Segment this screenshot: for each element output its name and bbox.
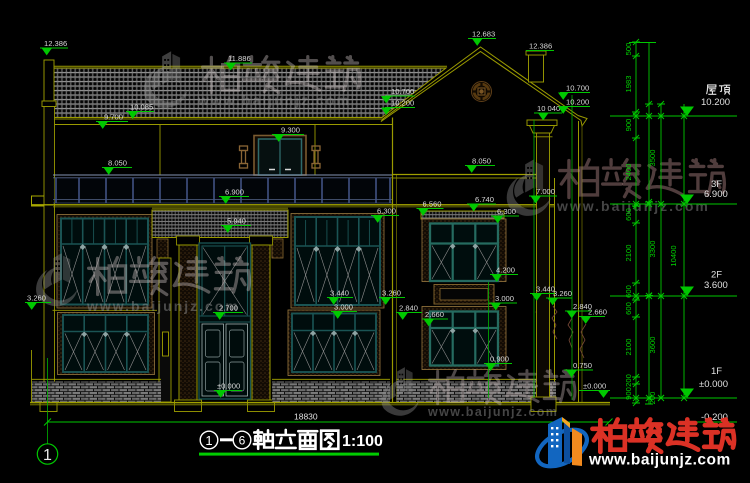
svg-text:600: 600 xyxy=(624,302,633,315)
svg-text:1F: 1F xyxy=(711,366,722,377)
svg-text:0.750: 0.750 xyxy=(573,361,592,370)
svg-text:±0.000: ±0.000 xyxy=(583,382,606,391)
svg-text:www.baijunjz.com: www.baijunjz.com xyxy=(86,298,240,314)
svg-text:3.260: 3.260 xyxy=(553,289,572,298)
svg-text:6.900: 6.900 xyxy=(704,189,728,200)
svg-text:12.683: 12.683 xyxy=(472,30,495,39)
svg-text:2.840: 2.840 xyxy=(399,304,418,313)
svg-text:18830: 18830 xyxy=(294,412,318,422)
svg-text:7.000: 7.000 xyxy=(536,187,555,196)
svg-text:3.000: 3.000 xyxy=(334,303,353,312)
svg-text:600: 600 xyxy=(624,208,633,221)
svg-text:2100: 2100 xyxy=(624,245,633,262)
svg-text:9.700: 9.700 xyxy=(104,113,123,122)
svg-text:9.300: 9.300 xyxy=(281,126,300,135)
svg-text:3600: 3600 xyxy=(648,337,657,354)
svg-text:10400: 10400 xyxy=(669,245,678,266)
svg-text:10.200: 10.200 xyxy=(701,97,730,108)
svg-text:10.700: 10.700 xyxy=(391,87,414,96)
svg-text:2.660: 2.660 xyxy=(588,308,607,317)
svg-text:10 040: 10 040 xyxy=(537,104,560,113)
svg-text:10.200: 10.200 xyxy=(391,99,414,108)
svg-text:5.940: 5.940 xyxy=(227,217,246,226)
svg-text:900: 900 xyxy=(624,119,633,132)
svg-text:www.baijunjz.com: www.baijunjz.com xyxy=(588,452,731,469)
svg-text:200: 200 xyxy=(624,374,633,387)
svg-text:4.200: 4.200 xyxy=(496,266,515,275)
svg-text:0.900: 0.900 xyxy=(490,355,509,364)
svg-text:10.085: 10.085 xyxy=(130,103,153,112)
svg-text:www.baijunjz.com: www.baijunjz.com xyxy=(427,405,558,419)
svg-text:10.700: 10.700 xyxy=(566,84,589,93)
svg-text:www.baijunjz.com: www.baijunjz.com xyxy=(197,92,351,108)
svg-text:6.300: 6.300 xyxy=(377,207,396,216)
svg-text:3500: 3500 xyxy=(648,150,657,167)
svg-text:2.660: 2.660 xyxy=(425,310,444,319)
svg-text:12.386: 12.386 xyxy=(529,42,552,51)
svg-text:1: 1 xyxy=(205,433,212,448)
svg-text:2400: 2400 xyxy=(624,164,633,181)
svg-text:3.260: 3.260 xyxy=(27,294,46,303)
svg-text:3.260: 3.260 xyxy=(382,289,401,298)
svg-text:3.440: 3.440 xyxy=(330,289,349,298)
svg-text:1: 1 xyxy=(43,447,52,464)
svg-text:6.900: 6.900 xyxy=(225,188,244,197)
svg-text:6: 6 xyxy=(239,434,246,448)
svg-text:3.600: 3.600 xyxy=(704,280,728,291)
svg-text:500: 500 xyxy=(624,43,633,56)
svg-text:2F: 2F xyxy=(711,270,722,281)
svg-text:11.886: 11.886 xyxy=(228,54,251,63)
svg-text:8.050: 8.050 xyxy=(108,159,127,168)
svg-text:1:100: 1:100 xyxy=(342,433,383,450)
svg-text:10.200: 10.200 xyxy=(566,98,589,107)
svg-text:1983: 1983 xyxy=(624,76,633,93)
svg-text:6.300: 6.300 xyxy=(497,207,516,216)
svg-text:12.386: 12.386 xyxy=(44,39,67,48)
svg-text:2.700: 2.700 xyxy=(219,304,238,313)
svg-text:6.560: 6.560 xyxy=(423,200,442,209)
svg-text:3300: 3300 xyxy=(648,241,657,258)
svg-text:±0.000: ±0.000 xyxy=(217,382,240,391)
svg-text:±0.000: ±0.000 xyxy=(699,379,728,390)
svg-text:3.000: 3.000 xyxy=(495,294,514,303)
svg-text:6.740: 6.740 xyxy=(475,195,494,204)
svg-text:2100: 2100 xyxy=(624,339,633,356)
svg-text:8.050: 8.050 xyxy=(472,157,491,166)
